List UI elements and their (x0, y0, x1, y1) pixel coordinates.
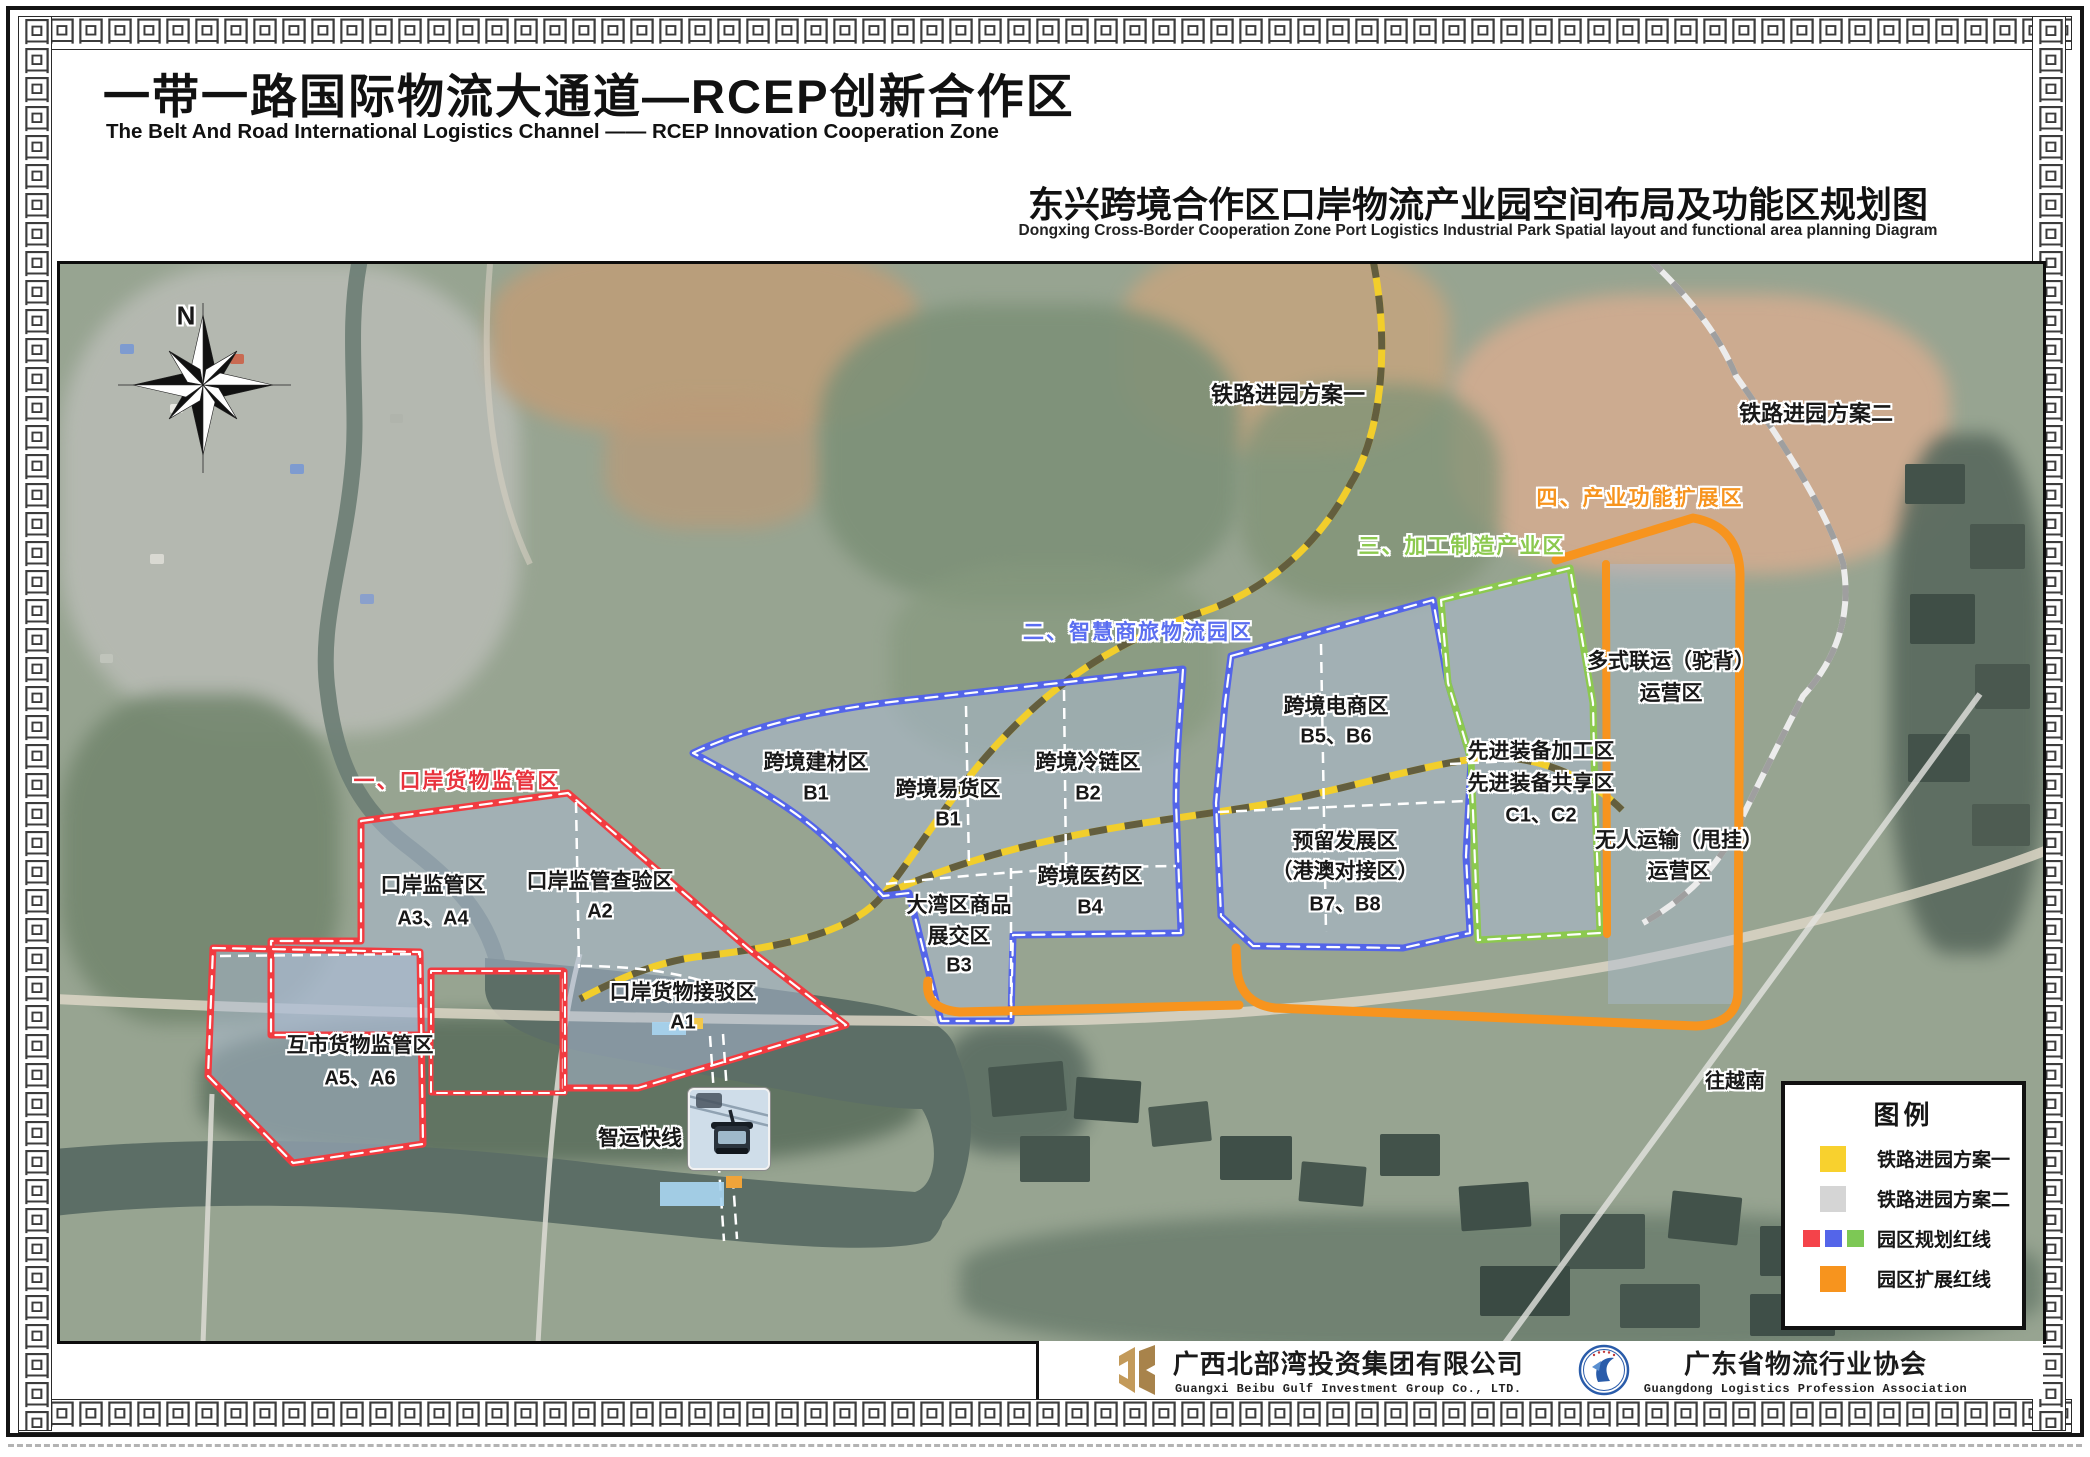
bridge-road-1 (203, 1094, 212, 1341)
legend-row-expansion: 园区扩展红线 (1795, 1265, 2022, 1292)
river-lower (60, 1141, 943, 1248)
legend-swatch-expansion (1820, 1266, 1846, 1292)
area-b1-building-name: 跨境建材区 (764, 746, 869, 776)
area-a56-name: 互市货物监管区 (287, 1029, 434, 1059)
area-b1-building-code: B1 (803, 783, 829, 806)
legend-box: 图例 铁路进园方案一 铁路进园方案二 园区规划红线 园区扩展红线 (1781, 1081, 2026, 1330)
area-multimodal-name-2: 运营区 (1640, 677, 1703, 707)
company2-name-cn: 广东省物流行业协会 (1684, 1344, 1927, 1381)
main-title: 一带一路国际物流大通道—RCEP创新合作区 (103, 58, 1075, 127)
orange-strip-fill (1608, 564, 1738, 1004)
area-a34-code: A3、A4 (397, 902, 468, 931)
to-vietnam-label: 往越南 (1705, 1065, 1765, 1094)
map-subtitle: 东兴跨境合作区口岸物流产业园空间布局及功能区规划图 (993, 176, 1963, 228)
area-c12-name-1: 先进装备加工区 (1468, 735, 1615, 765)
poster-page: 回回回回回回回回回回回回回回回回回回回回回回回回回回回回回回回回回回回回回回回回… (0, 0, 2090, 1457)
meander-border-left: 回回回回回回回回回回回回回回回回回回回回回回回回回回回回回回回回回回回回回回回回… (18, 16, 52, 1431)
area-b78-name-2: （港澳对接区） (1272, 855, 1419, 885)
legend-swatch-planning-red (1803, 1230, 1820, 1247)
blue-zone-title: 二、智慧商旅物流园区 (1023, 616, 1253, 646)
area-b2-code: B2 (1075, 783, 1101, 806)
railway-plan2-label: 铁路进园方案二 (1739, 396, 1893, 428)
north-road (487, 264, 530, 564)
area-b2-name: 跨境冷链区 (1036, 746, 1141, 776)
area-b78-code: B7、B8 (1309, 888, 1380, 917)
legend-title: 图例 (1785, 1095, 2022, 1132)
meander-border-top: 回回回回回回回回回回回回回回回回回回回回回回回回回回回回回回回回回回回回回回回回… (18, 16, 2072, 50)
legend-swatch-railway2 (1820, 1186, 1846, 1212)
area-b56-name: 跨境电商区 (1284, 690, 1389, 720)
company1-names: 广西北部湾投资集团有限公司 Guangxi Beibu Gulf Investm… (1173, 1344, 1524, 1396)
area-a56-code: A5、A6 (324, 1062, 395, 1091)
area-c12-name-2: 先进装备共享区 (1468, 767, 1615, 797)
area-b1-barter-code: B1 (935, 809, 961, 832)
area-a1-code: A1 (670, 1012, 696, 1035)
logistics-association-logo (1578, 1344, 1630, 1396)
red-zone-title: 一、口岸货物监管区 (354, 765, 561, 795)
area-c12-code: C1、C2 (1505, 799, 1576, 828)
area-a2-code: A2 (587, 901, 613, 924)
area-unmanned-name-1: 无人运输（甩挂） (1595, 824, 1763, 854)
company1-name-cn: 广西北部湾投资集团有限公司 (1173, 1344, 1524, 1381)
area-b78-name-1: 预留发展区 (1293, 825, 1398, 855)
legend-swatch-planning-blue (1825, 1230, 1842, 1247)
green-zone-title: 三、加工制造产业区 (1359, 530, 1566, 560)
area-unmanned-name-2: 运营区 (1648, 855, 1711, 885)
compass-rose (118, 303, 291, 473)
satellite-planning-map: N 一、口岸货物监管区 二、智慧商旅物流园区 三、加工制造产业区 四、产业功能扩… (57, 261, 2046, 1344)
legend-swatch-railway1 (1820, 1146, 1846, 1172)
area-a2-name: 口岸监管查验区 (527, 865, 674, 895)
area-a34-name: 口岸监管区 (381, 869, 486, 899)
area-b56-code: B5、B6 (1300, 720, 1371, 749)
legend-row-railway2: 铁路进园方案二 (1795, 1185, 2022, 1212)
area-b3-name-2: 展交区 (928, 920, 991, 950)
legend-label-railway1: 铁路进园方案一 (1877, 1145, 2010, 1172)
cable-car-image (688, 1088, 770, 1170)
company2-names: 广东省物流行业协会 Guangdong Logistics Profession… (1644, 1344, 1967, 1396)
legend-label-planning: 园区规划红线 (1877, 1225, 1991, 1252)
legend-swatch-planning-green (1847, 1230, 1864, 1247)
area-b4-code: B4 (1077, 897, 1103, 920)
area-b4-name: 跨境医药区 (1038, 860, 1143, 890)
compass-north-label: N (177, 301, 196, 332)
main-title-english: The Belt And Road International Logistic… (106, 120, 999, 144)
area-b3-name-1: 大湾区商品 (907, 889, 1012, 919)
company2-name-en: Guangdong Logistics Profession Associati… (1644, 1382, 1967, 1396)
legend-row-planning: 园区规划红线 (1795, 1225, 2022, 1252)
cable-line-label: 智运快线 (598, 1122, 682, 1152)
map-subtitle-english: Dongxing Cross-Border Cooperation Zone P… (993, 222, 1963, 240)
cable-car-illustration (690, 1090, 768, 1168)
footer-credits: 广西北部湾投资集团有限公司 Guangxi Beibu Gulf Investm… (1036, 1341, 2043, 1399)
legend-label-expansion: 园区扩展红线 (1877, 1265, 1991, 1292)
area-a1-name: 口岸货物接驳区 (610, 976, 757, 1006)
area-multimodal-name-1: 多式联运（驼背） (1587, 645, 1755, 675)
railway-plan1-label: 铁路进园方案一 (1211, 377, 1365, 409)
meander-border-bottom: 回回回回回回回回回回回回回回回回回回回回回回回回回回回回回回回回回回回回回回回回… (18, 1399, 2072, 1433)
orange-zone-title: 四、产业功能扩展区 (1537, 482, 1744, 512)
company1-name-en: Guangxi Beibu Gulf Investment Group Co.,… (1175, 1382, 1522, 1396)
area-b3-code: B3 (946, 955, 972, 978)
legend-row-railway1: 铁路进园方案一 (1795, 1145, 2022, 1172)
area-b1-barter-name: 跨境易货区 (896, 773, 1001, 803)
port-station (660, 1182, 724, 1206)
port-station-chip (726, 1176, 742, 1188)
bottom-dashed-line (8, 1444, 2082, 1447)
beibu-gulf-logo (1115, 1343, 1159, 1397)
legend-label-railway2: 铁路进园方案二 (1877, 1185, 2010, 1212)
